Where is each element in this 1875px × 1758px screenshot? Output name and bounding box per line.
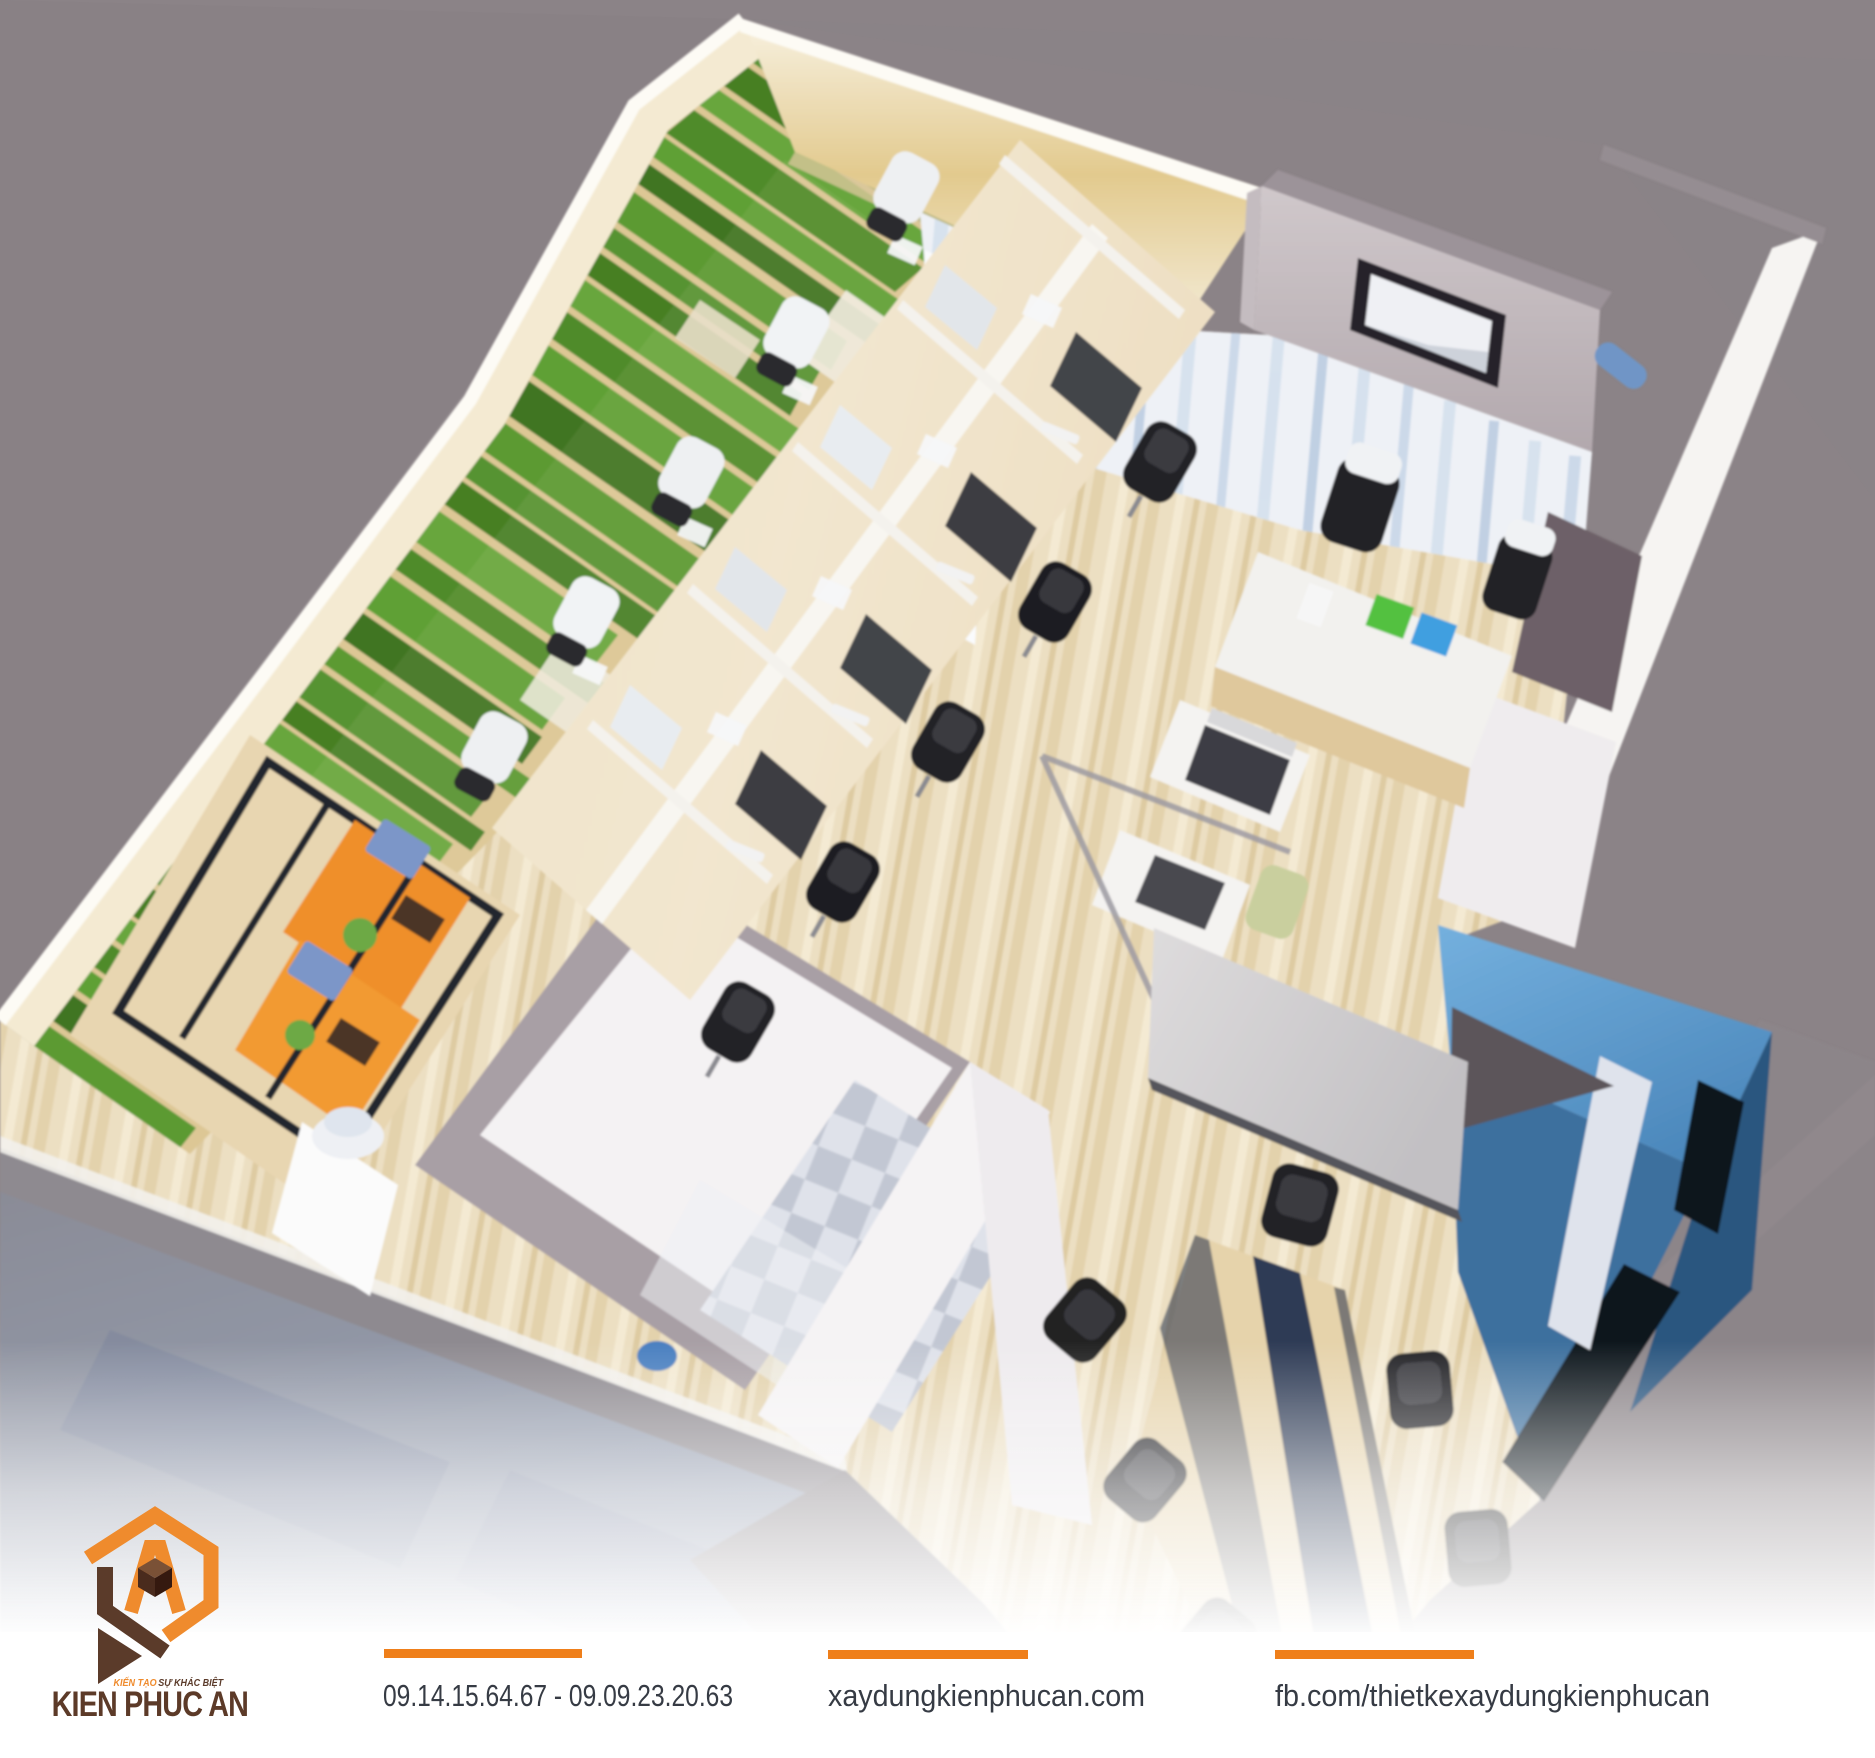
svg-text:fb.com/thietkexaydungkienphuca: fb.com/thietkexaydungkienphucan (1275, 1678, 1710, 1713)
svg-text:09.14.15.64.67 - 09.09.23.20.6: 09.14.15.64.67 - 09.09.23.20.63 (383, 1678, 733, 1713)
svg-text:KIEN PHUC AN: KIEN PHUC AN (52, 1684, 248, 1723)
svg-text:xaydungkienphucan.com: xaydungkienphucan.com (828, 1678, 1145, 1713)
